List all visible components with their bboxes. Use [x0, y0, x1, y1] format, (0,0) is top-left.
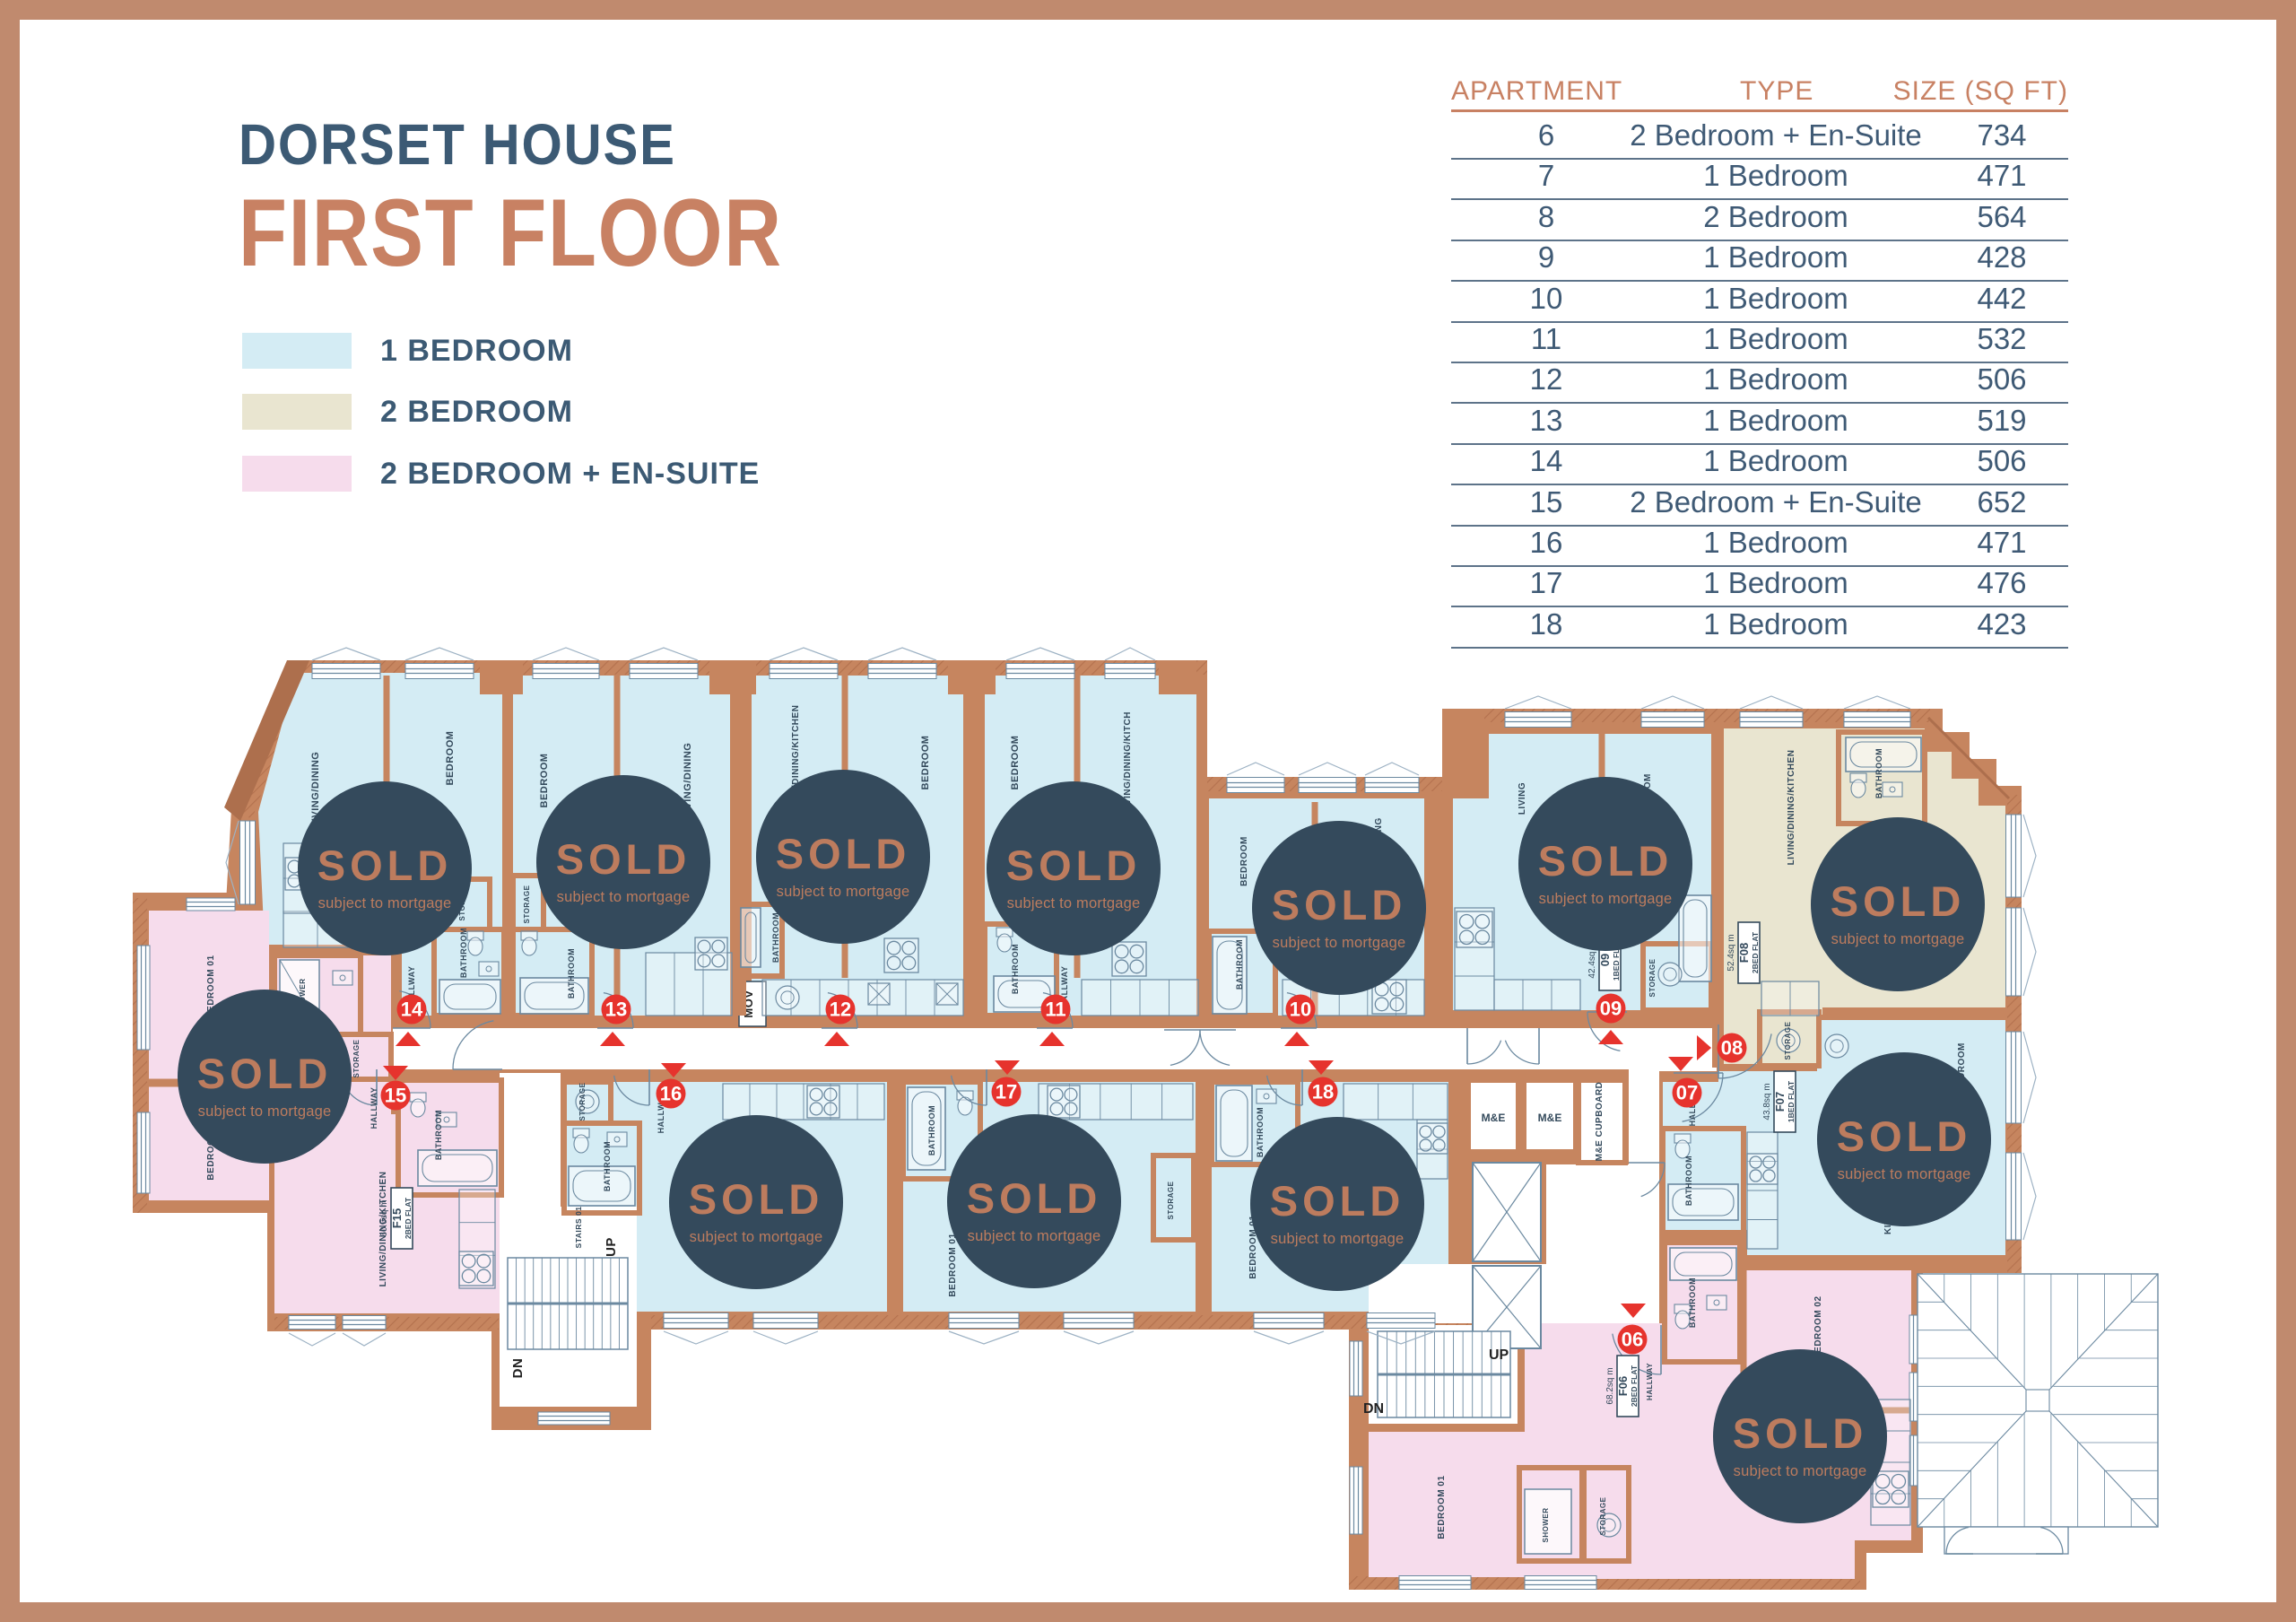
- svg-text:2BED FLAT: 2BED FLAT: [1630, 1365, 1639, 1407]
- svg-text:SOLD: SOLD: [1831, 877, 1966, 925]
- svg-text:BATHROOM: BATHROOM: [1235, 939, 1244, 990]
- svg-text:F08: F08: [1737, 943, 1751, 963]
- svg-text:16: 16: [660, 1083, 682, 1105]
- svg-text:BATHROOM: BATHROOM: [567, 948, 576, 998]
- svg-text:BATHROOM: BATHROOM: [1011, 944, 1020, 994]
- svg-text:13: 13: [605, 998, 627, 1021]
- svg-text:06: 06: [1622, 1329, 1643, 1351]
- svg-text:BATHROOM: BATHROOM: [434, 1110, 443, 1160]
- svg-text:STORAGE: STORAGE: [1784, 1021, 1792, 1060]
- svg-text:BATHROOM: BATHROOM: [603, 1141, 612, 1191]
- svg-text:SOLD: SOLD: [776, 830, 911, 877]
- svg-text:STORAGE: STORAGE: [523, 885, 531, 923]
- svg-text:SOLD: SOLD: [556, 835, 691, 883]
- svg-text:2BED FLAT: 2BED FLAT: [404, 1197, 413, 1239]
- svg-text:STAIRS 01: STAIRS 01: [574, 1207, 583, 1249]
- svg-text:STORAGE: STORAGE: [578, 1082, 587, 1121]
- svg-text:BEDROOM: BEDROOM: [1239, 836, 1249, 886]
- svg-text:F07: F07: [1773, 1092, 1787, 1112]
- svg-text:subject to mortgage: subject to mortgage: [1007, 895, 1141, 911]
- svg-text:43.8sq m: 43.8sq m: [1762, 1083, 1772, 1120]
- svg-text:subject to mortgage: subject to mortgage: [1831, 931, 1965, 947]
- svg-text:subject to mortgage: subject to mortgage: [198, 1103, 332, 1120]
- svg-text:HALLWAY: HALLWAY: [370, 1087, 378, 1129]
- svg-text:STORAGE: STORAGE: [1648, 958, 1657, 997]
- svg-text:SOLD: SOLD: [1733, 1409, 1868, 1457]
- svg-text:subject to mortgage: subject to mortgage: [1271, 1231, 1405, 1247]
- svg-text:UP: UP: [1489, 1347, 1509, 1363]
- svg-text:subject to mortgage: subject to mortgage: [690, 1229, 823, 1245]
- svg-text:subject to mortgage: subject to mortgage: [968, 1228, 1101, 1244]
- svg-text:BEDROOM: BEDROOM: [1010, 736, 1021, 790]
- svg-text:BEDROOM: BEDROOM: [445, 731, 456, 786]
- svg-text:SOLD: SOLD: [1270, 1177, 1405, 1225]
- svg-text:18: 18: [1312, 1081, 1334, 1103]
- svg-text:68.2sq m: 68.2sq m: [1605, 1367, 1615, 1404]
- svg-text:07: 07: [1676, 1082, 1698, 1104]
- svg-text:M&E: M&E: [1482, 1112, 1506, 1124]
- svg-text:SOLD: SOLD: [1272, 881, 1407, 929]
- svg-text:subject to mortgage: subject to mortgage: [318, 895, 452, 911]
- svg-text:60.6sq m: 60.6sq m: [379, 1199, 389, 1236]
- svg-text:SHOWER: SHOWER: [1542, 1508, 1550, 1543]
- svg-text:STORAGE: STORAGE: [1167, 1181, 1175, 1219]
- svg-text:BEDROOM 01: BEDROOM 01: [948, 1233, 958, 1296]
- svg-text:subject to mortgage: subject to mortgage: [1273, 935, 1406, 951]
- svg-text:2BED FLAT: 2BED FLAT: [1751, 931, 1760, 973]
- svg-text:15: 15: [385, 1085, 406, 1107]
- svg-text:M&E CUPBOARD: M&E CUPBOARD: [1595, 1082, 1605, 1162]
- svg-text:09: 09: [1600, 998, 1622, 1020]
- svg-text:STORAGE: STORAGE: [352, 1039, 361, 1077]
- svg-text:08: 08: [1721, 1037, 1743, 1060]
- svg-text:subject to mortgage: subject to mortgage: [777, 884, 910, 900]
- svg-text:SOLD: SOLD: [1837, 1112, 1972, 1160]
- svg-text:BATHROOM: BATHROOM: [1874, 748, 1883, 798]
- svg-text:BATHROOM: BATHROOM: [1256, 1107, 1265, 1157]
- svg-text:BATHROOM: BATHROOM: [771, 912, 780, 963]
- svg-text:BEDROOM 02: BEDROOM 02: [1813, 1295, 1823, 1359]
- svg-text:DN: DN: [1363, 1401, 1384, 1417]
- svg-text:subject to mortgage: subject to mortgage: [1734, 1463, 1867, 1479]
- svg-text:1BED FLAT: 1BED FLAT: [1787, 1080, 1796, 1122]
- svg-text:UP: UP: [604, 1237, 619, 1257]
- svg-text:17: 17: [996, 1081, 1017, 1103]
- svg-text:subject to mortgage: subject to mortgage: [1838, 1166, 1971, 1182]
- svg-text:SOLD: SOLD: [689, 1175, 824, 1223]
- svg-text:F15: F15: [390, 1208, 404, 1228]
- svg-text:M&E: M&E: [1538, 1112, 1562, 1124]
- svg-text:HALLWAY: HALLWAY: [1646, 1363, 1654, 1400]
- svg-text:09: 09: [1598, 954, 1612, 966]
- svg-text:SOLD: SOLD: [967, 1174, 1102, 1222]
- svg-text:subject to mortgage: subject to mortgage: [557, 889, 691, 905]
- svg-text:subject to mortgage: subject to mortgage: [1539, 891, 1673, 907]
- svg-text:52.4sq m: 52.4sq m: [1726, 934, 1736, 971]
- svg-text:BATHROOM: BATHROOM: [927, 1105, 936, 1155]
- svg-text:LIVING: LIVING: [1518, 782, 1527, 815]
- svg-text:SOLD: SOLD: [1006, 842, 1142, 889]
- svg-text:14: 14: [401, 998, 423, 1021]
- svg-text:11: 11: [1045, 998, 1065, 1021]
- svg-text:STORAGE: STORAGE: [1599, 1496, 1607, 1535]
- svg-text:12: 12: [830, 998, 851, 1021]
- svg-text:BEDROOM: BEDROOM: [539, 754, 550, 808]
- svg-text:SOLD: SOLD: [1538, 837, 1674, 885]
- svg-text:F06: F06: [1616, 1376, 1630, 1396]
- svg-text:BATHROOM: BATHROOM: [1688, 1278, 1697, 1328]
- svg-text:BEDROOM 01: BEDROOM 01: [1437, 1475, 1447, 1539]
- svg-text:SOLD: SOLD: [197, 1050, 333, 1097]
- svg-text:SOLD: SOLD: [317, 842, 453, 889]
- svg-text:BATHROOM: BATHROOM: [1684, 1155, 1693, 1206]
- svg-text:BEDROOM: BEDROOM: [920, 736, 931, 790]
- svg-text:BATHROOM: BATHROOM: [459, 928, 468, 978]
- svg-text:DN: DN: [510, 1358, 526, 1379]
- svg-text:10: 10: [1290, 998, 1311, 1021]
- svg-text:LIVING/DINING/KITCHEN: LIVING/DINING/KITCHEN: [1787, 750, 1796, 866]
